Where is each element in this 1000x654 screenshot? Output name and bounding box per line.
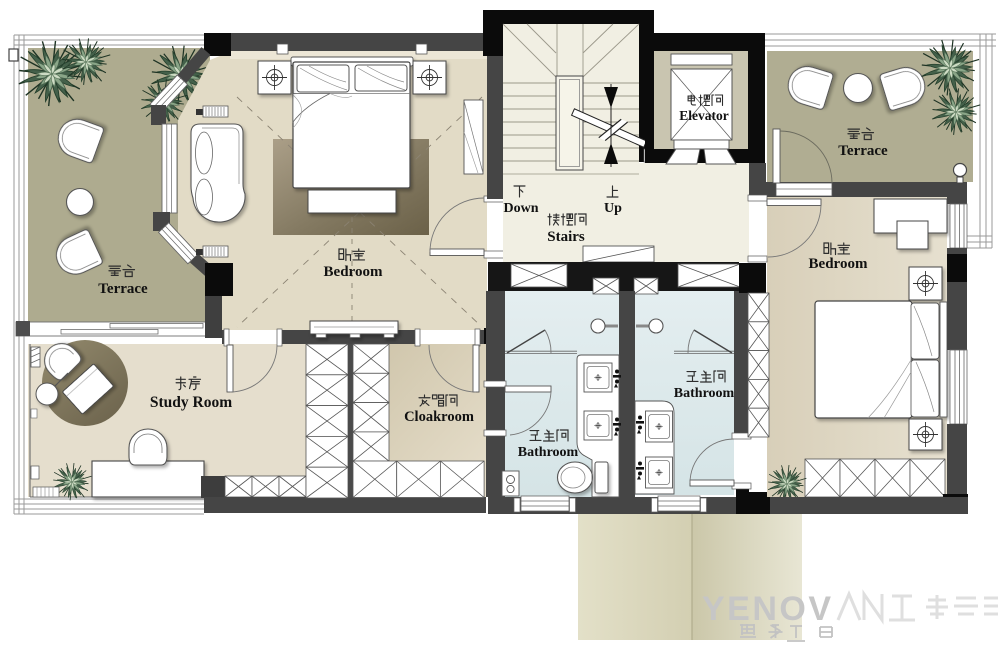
- svg-text:Study Room: Study Room: [150, 394, 232, 411]
- svg-text:Down: Down: [503, 201, 538, 216]
- svg-text:Terrace: Terrace: [98, 281, 148, 297]
- svg-text:Bedroom: Bedroom: [809, 256, 868, 272]
- svg-text:Bathroom: Bathroom: [518, 445, 579, 460]
- svg-text:Up: Up: [604, 201, 622, 216]
- svg-text:Bathroom: Bathroom: [674, 386, 735, 401]
- svg-text:Terrace: Terrace: [838, 143, 888, 159]
- svg-text:YENOV: YENOV: [702, 590, 834, 628]
- svg-text:Bedroom: Bedroom: [324, 264, 383, 280]
- svg-text:Elevator: Elevator: [679, 108, 729, 123]
- svg-text:Cloakroom: Cloakroom: [404, 409, 474, 425]
- svg-text:Stairs: Stairs: [547, 229, 585, 245]
